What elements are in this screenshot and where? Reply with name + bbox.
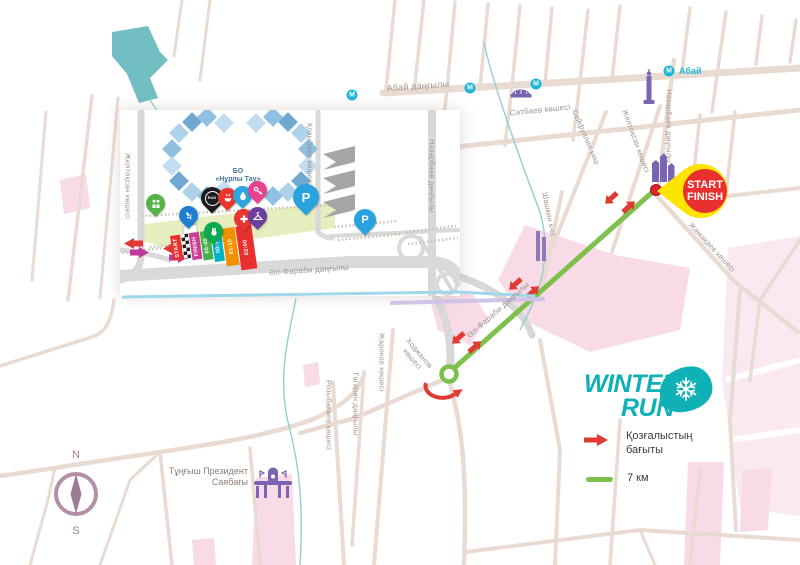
- hanger-icon: [248, 207, 267, 226]
- street-label-zharokov: Жароков көшесі: [378, 333, 387, 392]
- start-finish-badge: START FINISH: [649, 155, 749, 231]
- metro-icon: М: [531, 79, 542, 90]
- street-label-gagarin: Гагарин даңғылы: [352, 373, 361, 436]
- compass-south-label: S: [72, 525, 79, 536]
- legend-distance-label: 7 км: [627, 471, 649, 485]
- microphone-icon: [179, 206, 198, 225]
- wc-icon: [146, 194, 165, 213]
- compass-north-label: N: [72, 449, 80, 461]
- mascot-icon: [204, 222, 223, 241]
- compass: N S: [44, 444, 108, 536]
- circus-icon: [511, 90, 532, 98]
- metro-icon-abay: М: [664, 66, 675, 77]
- map-canvas: START FINISH 00:40 00:55 01:10 02:00 RUN: [0, 0, 800, 565]
- turnaround-point: [442, 367, 457, 382]
- parking-icon: P: [293, 184, 319, 210]
- street-label-kozybaev: Қозыбаев көшесі: [306, 123, 315, 185]
- svg-text:START: START: [687, 179, 723, 191]
- legend-route-line-icon: [586, 477, 613, 482]
- street-label-nazarbayev-inset: Назарбаев даңғылы: [428, 139, 437, 213]
- park-label: Тұңғыш Президент Саябағы: [148, 466, 248, 488]
- legend-direction-arrow-icon: [584, 432, 614, 448]
- lake: [112, 26, 168, 103]
- metro-icon: М: [465, 83, 476, 94]
- legend-direction-label: Қозғалыстың бағыты: [626, 429, 692, 457]
- compass-needle: [71, 474, 82, 514]
- street-label-zheltoksan-inset: Желтоқсан көшесі: [124, 153, 133, 219]
- svg-text:FINISH: FINISH: [687, 191, 723, 203]
- street-label-rozybakiev: Розыбакиев көшесі: [325, 380, 334, 450]
- snowflake-badge: [652, 360, 716, 418]
- metro-station-label: Абай: [679, 66, 701, 76]
- parking-icon: P: [354, 209, 376, 231]
- nurly-tau-label: БО «Нұрлы Тау»: [215, 168, 260, 184]
- metro-icon: М: [347, 90, 358, 101]
- street-label-nazarbayev-east: Назарбаев даңғылы: [665, 89, 674, 163]
